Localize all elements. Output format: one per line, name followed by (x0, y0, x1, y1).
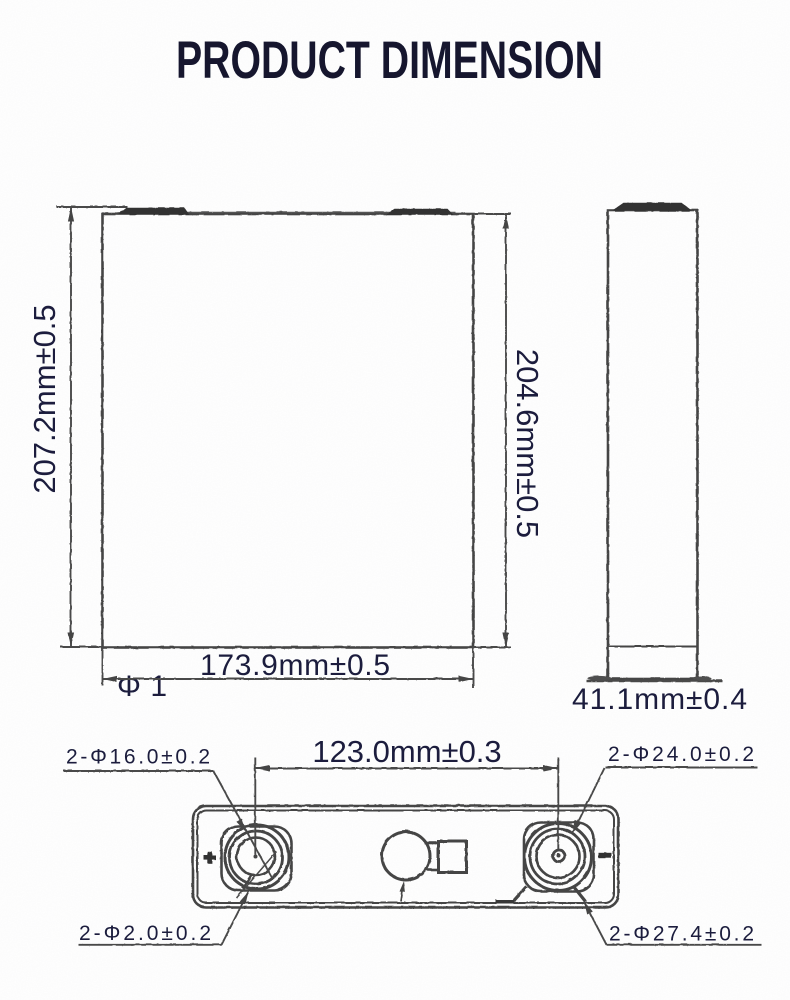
svg-text:41.1mm±0.4: 41.1mm±0.4 (572, 683, 747, 716)
svg-text:123.0mm±0.3: 123.0mm±0.3 (312, 734, 501, 769)
svg-text:173.9mm±0.5: 173.9mm±0.5 (200, 649, 390, 682)
svg-text:204.6mm±0.5: 204.6mm±0.5 (510, 349, 545, 538)
svg-text:207.2mm±0.5: 207.2mm±0.5 (27, 304, 62, 493)
svg-text:PRODUCT DIMENSION: PRODUCT DIMENSION (176, 31, 603, 90)
svg-text:Φ 1: Φ 1 (117, 670, 167, 703)
